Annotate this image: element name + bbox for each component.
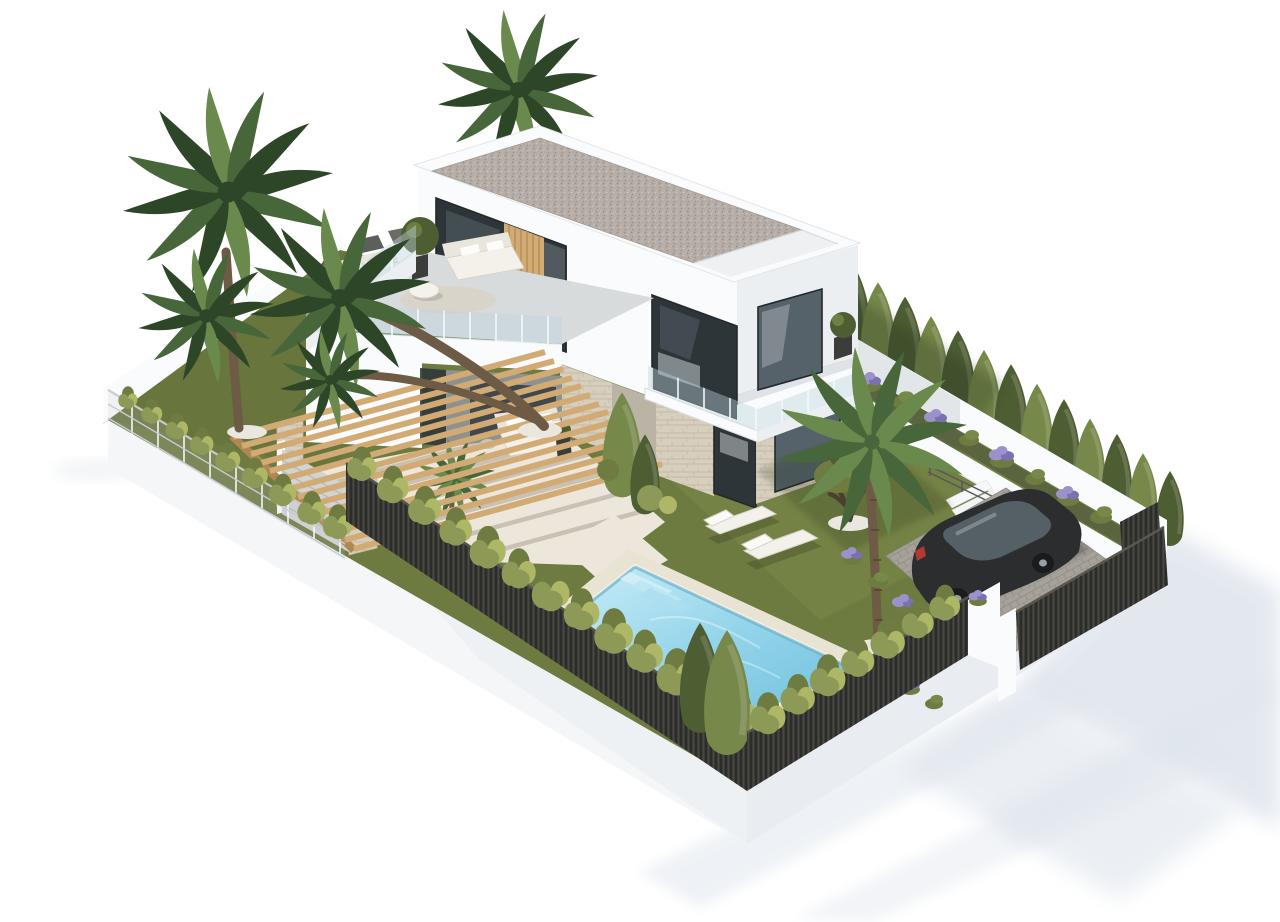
render-canvas: Modern two-storey villa with garden and … — [0, 0, 1280, 922]
gate-pillar — [998, 608, 1016, 702]
villa-render: Modern two-storey villa with garden and … — [0, 0, 1280, 922]
